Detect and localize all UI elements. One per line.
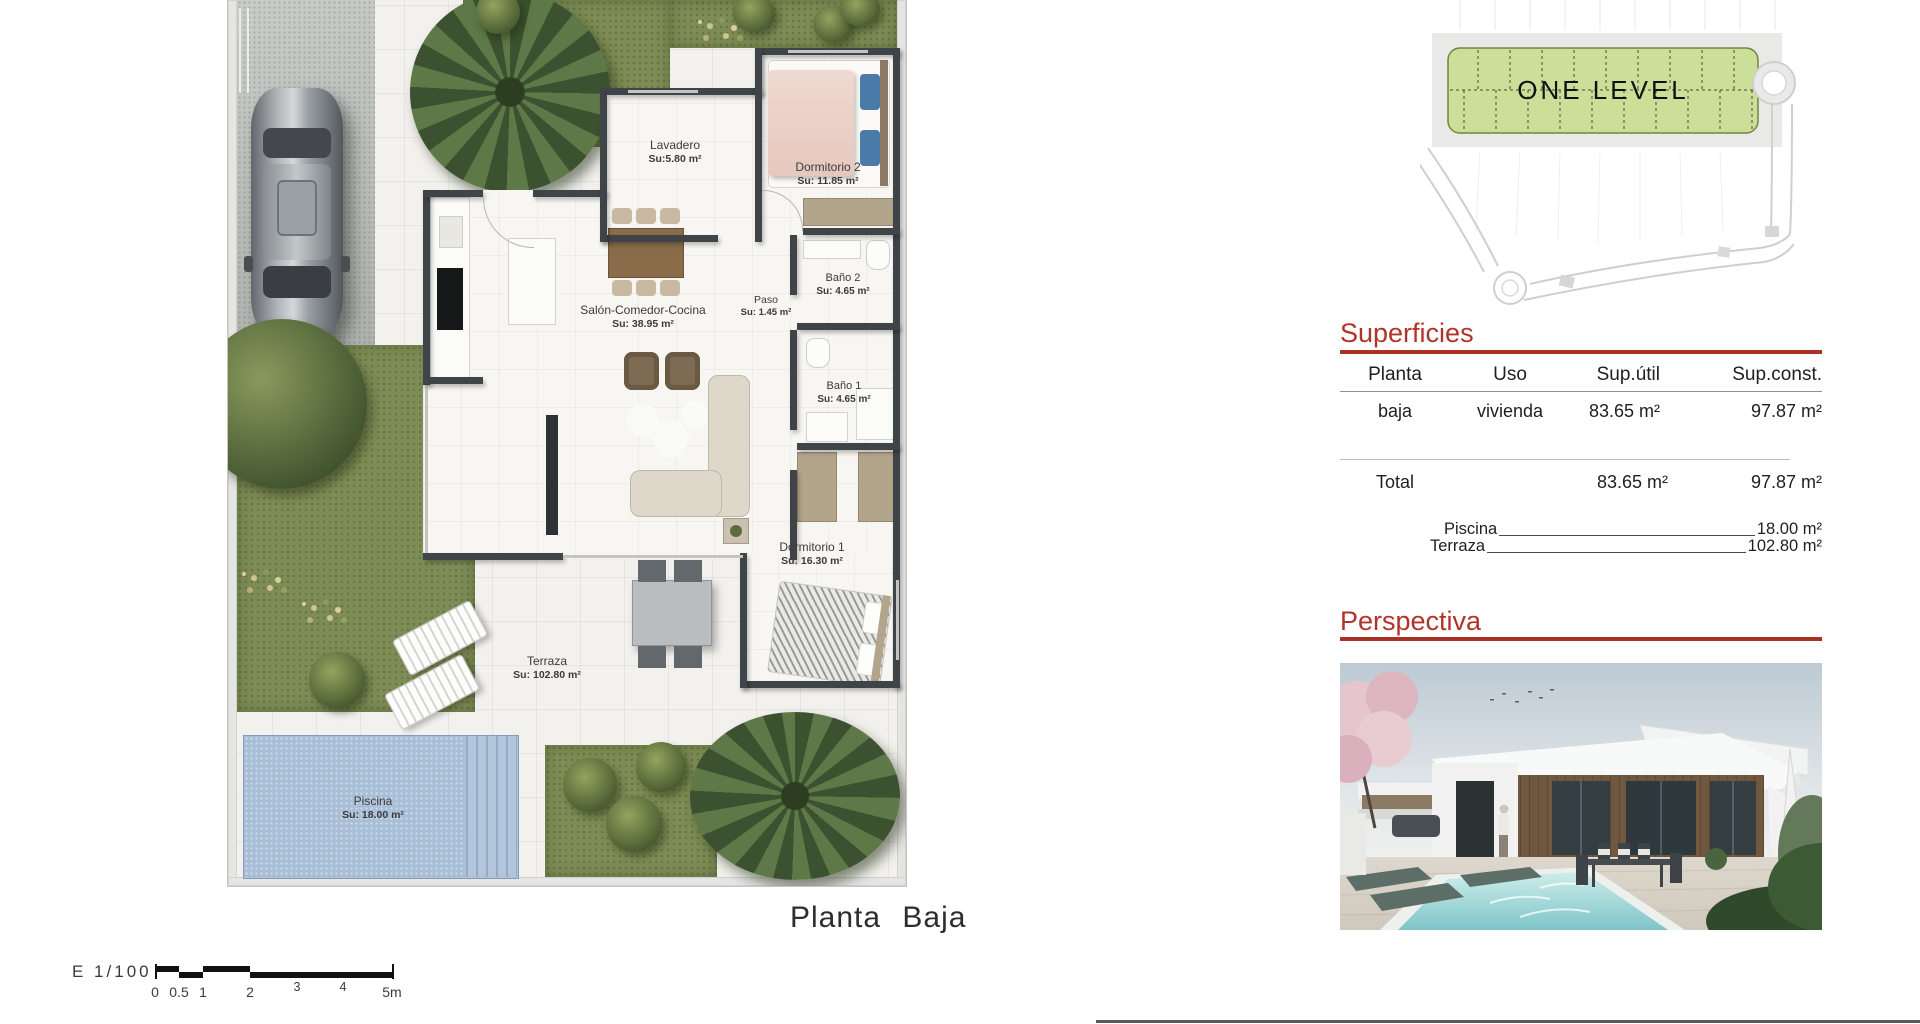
wall	[740, 553, 747, 688]
scale-tick-label: 0	[151, 984, 159, 1000]
sofa	[630, 470, 722, 517]
car-windshield	[263, 266, 331, 298]
car-sunroof	[277, 180, 317, 236]
media-wall	[546, 415, 558, 535]
extra-label: Terraza	[1430, 537, 1485, 556]
site-plan-drawing: ONE LEVEL	[1420, 0, 1820, 312]
col-header-sup-util: Sup.útil	[1570, 364, 1680, 386]
room-label-paso: Paso Su: 1.45 m²	[741, 294, 792, 319]
one-level-label: ONE LEVEL	[1517, 75, 1689, 105]
wall	[797, 443, 900, 450]
scale-segment	[179, 972, 203, 978]
parked-car	[1392, 815, 1440, 837]
heading-rule	[1340, 637, 1822, 641]
plan-title: Planta Baja	[790, 901, 966, 935]
scale-tick	[392, 964, 394, 979]
scale-segment	[203, 966, 250, 972]
room-name: Baño 1	[817, 380, 870, 394]
car-mirror	[244, 256, 253, 272]
wall	[533, 190, 607, 197]
window	[628, 90, 698, 93]
pillow	[860, 74, 880, 110]
window	[788, 50, 868, 53]
room-label-salon: Salón-Comedor-Cocina Su: 38.95 m²	[580, 303, 705, 331]
scale-tick-label: 0.5	[169, 984, 188, 1000]
dresser	[803, 198, 899, 226]
outdoor-chair	[638, 646, 666, 668]
room-name: Paso	[741, 294, 792, 307]
superficies-table: Planta Uso Sup.útil Sup.const. baja vivi…	[1340, 364, 1822, 493]
room-area: Su:5.80 m²	[648, 153, 701, 166]
wall	[423, 190, 430, 385]
dining-chair	[660, 280, 680, 296]
flower-patch	[698, 20, 702, 24]
room-area: Su: 16.30 m²	[779, 555, 844, 568]
heading-rule	[1340, 350, 1822, 354]
col-header-uso: Uso	[1450, 364, 1570, 386]
driveway	[237, 0, 375, 345]
outdoor-table	[632, 580, 712, 646]
outdoor-chair	[638, 560, 666, 582]
wall	[797, 323, 900, 330]
wall	[790, 235, 797, 295]
extra-line-terraza: Terraza 102.80 m²	[1420, 539, 1822, 556]
wall	[423, 553, 563, 560]
room-name: Terraza	[513, 654, 581, 669]
plant	[730, 525, 742, 537]
extra-value: 102.80 m²	[1748, 537, 1822, 556]
doorway	[1456, 781, 1494, 859]
armchair	[665, 352, 700, 390]
dining-chair	[636, 208, 656, 224]
wall	[600, 95, 607, 242]
outdoor-chair	[674, 560, 702, 582]
scale-label: E 1/100	[72, 962, 152, 982]
outdoor-chair	[674, 646, 702, 668]
sheet-edge-line	[1096, 1020, 1920, 1023]
dining-chair	[612, 280, 632, 296]
toilet	[806, 338, 830, 368]
scale-segment	[250, 972, 393, 978]
floor-plan: Lavadero Su:5.80 m² Dormitorio 2 Su: 11.…	[228, 0, 906, 886]
room-label-bano-2: Baño 2 Su: 4.65 m²	[816, 272, 869, 298]
flower-patch	[242, 572, 246, 576]
room-area: Su: 38.95 m²	[580, 318, 705, 331]
room-label-terraza: Terraza Su: 102.80 m²	[513, 654, 581, 682]
sliding-door	[563, 555, 743, 558]
room-area: Su: 4.65 m²	[817, 394, 870, 407]
parking-line	[247, 8, 249, 93]
kitchen-island	[508, 238, 556, 325]
bed-dormitorio-1	[767, 581, 890, 686]
wardrobe	[797, 452, 837, 522]
col-header-planta: Planta	[1340, 364, 1450, 386]
pillow	[860, 130, 880, 166]
window	[425, 385, 428, 553]
cell-uso: vivienda	[1450, 401, 1570, 422]
room-area: Su: 102.80 m²	[513, 669, 581, 682]
room-area: Su: 4.65 m²	[816, 286, 869, 299]
dining-chair	[660, 208, 680, 224]
leader-line	[1499, 535, 1755, 536]
perspectiva-heading: Perspectiva	[1340, 606, 1481, 637]
room-name: Salón-Comedor-Cocina	[580, 303, 705, 318]
table-rule	[1340, 459, 1790, 460]
room-label-bano-1: Baño 1 Su: 4.65 m²	[817, 380, 870, 406]
cell-sup-util: 83.65 m²	[1570, 401, 1680, 422]
window	[896, 580, 899, 660]
car	[251, 88, 343, 338]
room-name: Lavadero	[648, 138, 701, 153]
car-rear-glass	[263, 128, 331, 158]
extras-block: Piscina 18.00 m² Terraza 102.80 m²	[1420, 522, 1822, 556]
scale-tick-label: 5m	[382, 984, 401, 1000]
pool-steps	[466, 736, 517, 877]
total-sup-util: 83.65 m²	[1570, 472, 1680, 493]
col-header-sup-const: Sup.const.	[1680, 364, 1822, 386]
kitchen-sink	[439, 216, 463, 248]
room-label-piscina: Piscina Su: 18.00 m²	[342, 794, 404, 822]
wall	[803, 228, 900, 235]
parking-line	[239, 8, 241, 93]
cooktop	[437, 268, 463, 330]
armchair	[624, 352, 659, 390]
bush	[606, 796, 662, 852]
scale-segment	[155, 966, 179, 972]
plan-sheet: Lavadero Su:5.80 m² Dormitorio 2 Su: 11.…	[0, 0, 1920, 1024]
scale-tick-label: 2	[246, 984, 254, 1000]
wall	[740, 681, 900, 688]
room-area: Su: 11.85 m²	[795, 175, 860, 188]
scale-tick-label: 3	[294, 980, 301, 994]
total-label: Total	[1340, 472, 1450, 493]
bush	[636, 742, 686, 792]
table-row: baja vivienda 83.65 m² 97.87 m²	[1340, 401, 1822, 422]
wall	[423, 190, 483, 197]
wall	[423, 377, 483, 384]
bush	[309, 652, 365, 708]
room-name: Baño 2	[816, 272, 869, 286]
kitchen-counter	[430, 197, 470, 379]
car-mirror	[341, 256, 350, 272]
room-label-dormitorio-2: Dormitorio 2 Su: 11.85 m²	[795, 160, 860, 188]
wall	[790, 330, 797, 430]
table-header-row: Planta Uso Sup.útil Sup.const.	[1340, 364, 1822, 386]
scale-tick-label: 1	[199, 984, 207, 1000]
flower-patch	[302, 602, 306, 606]
room-area: Su: 1.45 m²	[741, 307, 792, 319]
glass-walls	[1552, 781, 1756, 855]
wardrobe	[858, 452, 898, 522]
side-table	[723, 518, 749, 544]
wall	[755, 55, 762, 242]
dining-chair	[636, 280, 656, 296]
site-plan: ONE LEVEL	[1420, 0, 1820, 312]
scale-bar	[155, 966, 395, 980]
palm-tree-large	[690, 712, 900, 880]
superficies-heading: Superficies	[1340, 318, 1474, 349]
room-name: Dormitorio 2	[795, 160, 860, 175]
cell-planta: baja	[1340, 401, 1450, 422]
room-name: Piscina	[342, 794, 404, 809]
table-rule	[1340, 391, 1822, 392]
vanity	[803, 240, 861, 259]
cell-sup-const: 97.87 m²	[1680, 401, 1822, 422]
planter-wall	[1340, 813, 1366, 875]
dining-chair	[612, 208, 632, 224]
headboard	[880, 60, 888, 186]
room-label-dormitorio-1: Dormitorio 1 Su: 16.30 m²	[779, 540, 844, 568]
perspective-render	[1340, 663, 1822, 930]
perspective-drawing	[1340, 663, 1822, 930]
wall	[600, 235, 718, 242]
total-sup-const: 97.87 m²	[1680, 472, 1822, 493]
shower-tray	[806, 412, 848, 442]
scale-tick-label: 4	[340, 980, 347, 994]
table-total-row: Total 83.65 m² 97.87 m²	[1340, 472, 1822, 493]
bush	[563, 758, 617, 812]
toilet	[866, 240, 890, 270]
room-name: Dormitorio 1	[779, 540, 844, 555]
leader-line	[1487, 552, 1746, 553]
room-area: Su: 18.00 m²	[342, 809, 404, 822]
room-label-lavadero: Lavadero Su:5.80 m²	[648, 138, 701, 166]
